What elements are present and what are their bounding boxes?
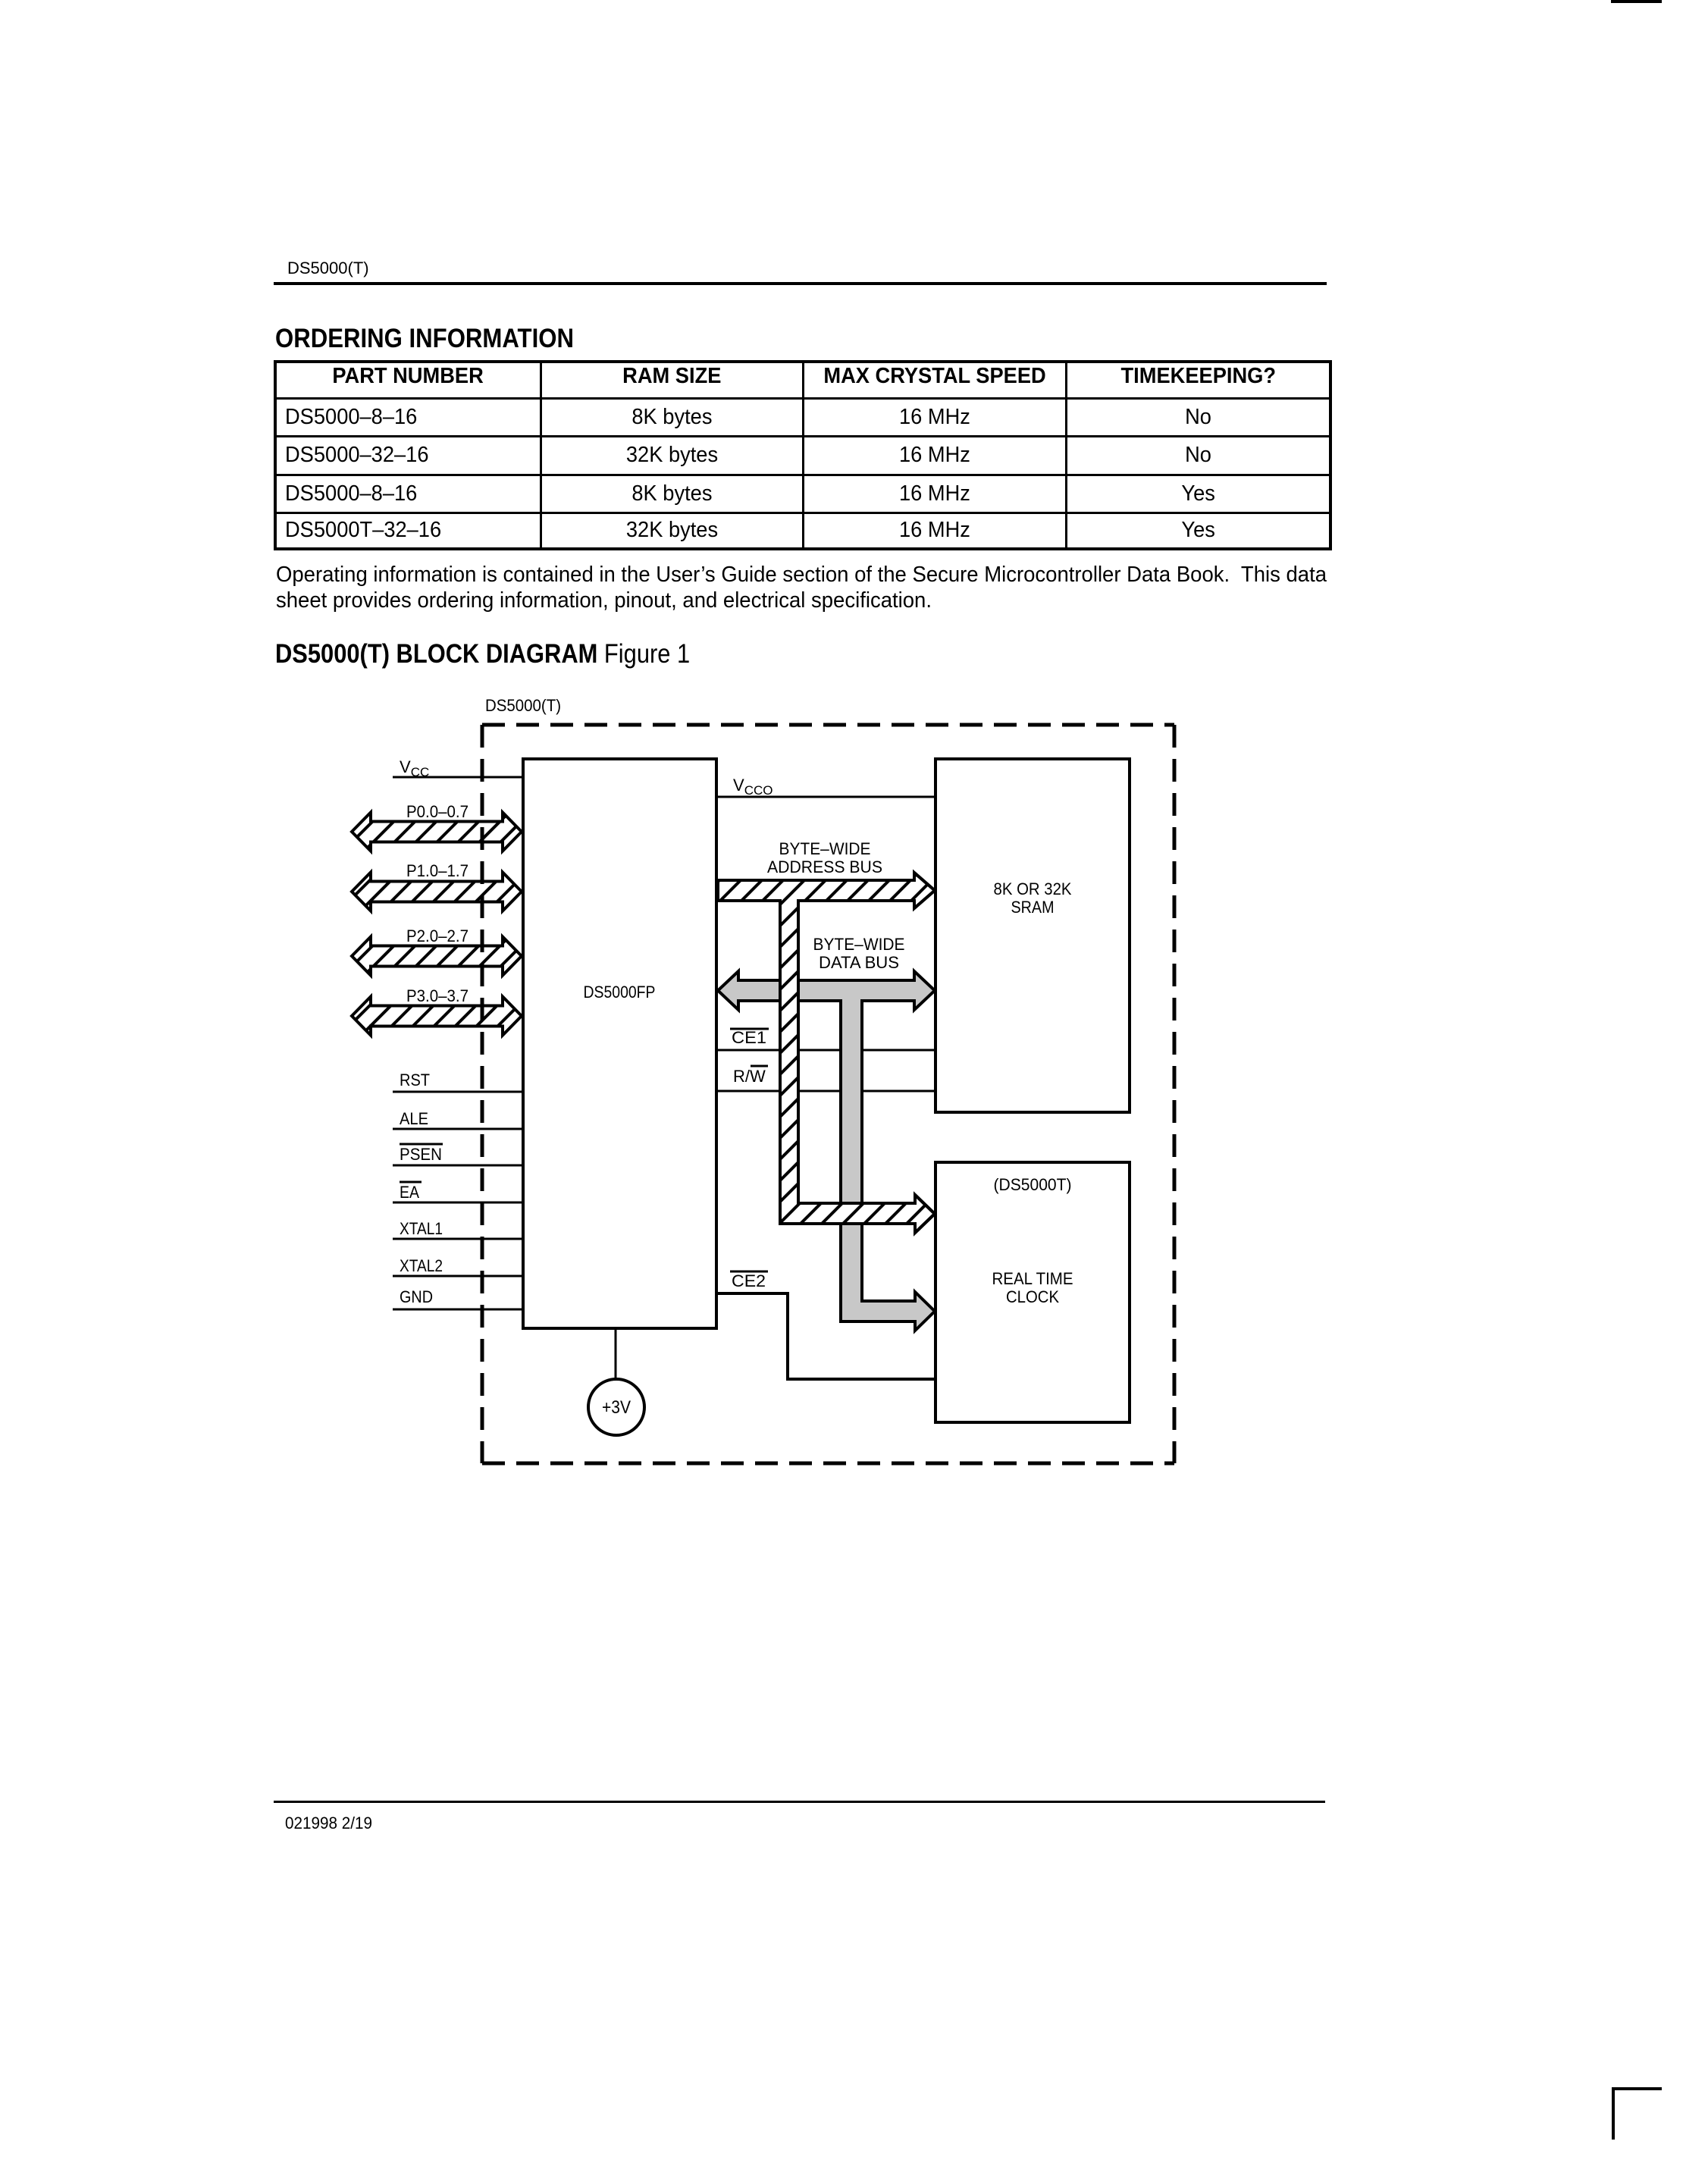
svg-text:EA: EA [400, 1183, 419, 1202]
svg-text:XTAL1: XTAL1 [400, 1219, 443, 1238]
svg-text:BYTE–WIDE: BYTE–WIDE [813, 935, 905, 954]
svg-text:DATA BUS: DATA BUS [819, 953, 899, 972]
svg-text:BYTE–WIDE: BYTE–WIDE [779, 839, 871, 858]
svg-text:R/W: R/W [733, 1067, 766, 1086]
svg-text:+3V: +3V [602, 1397, 631, 1418]
svg-text:PSEN: PSEN [400, 1145, 442, 1164]
svg-text:DS5000(T): DS5000(T) [485, 696, 561, 715]
svg-text:REAL TIME: REAL TIME [992, 1269, 1073, 1288]
svg-text:CLOCK: CLOCK [1006, 1287, 1059, 1306]
svg-text:RST: RST [400, 1071, 430, 1089]
svg-text:8K OR 32K: 8K OR 32K [994, 879, 1072, 898]
svg-text:CE1: CE1 [732, 1028, 766, 1047]
svg-text:ALE: ALE [400, 1109, 428, 1128]
svg-text:(DS5000T): (DS5000T) [994, 1175, 1072, 1194]
svg-text:P0.0–0.7: P0.0–0.7 [406, 802, 469, 821]
svg-text:SRAM: SRAM [1011, 898, 1055, 917]
svg-text:P2.0–2.7: P2.0–2.7 [406, 926, 469, 945]
svg-text:GND: GND [400, 1287, 433, 1306]
svg-text:P1.0–1.7: P1.0–1.7 [406, 861, 469, 880]
svg-text:VCCO: VCCO [733, 776, 773, 798]
svg-text:ADDRESS BUS: ADDRESS BUS [767, 857, 882, 876]
svg-text:P3.0–3.7: P3.0–3.7 [406, 986, 469, 1005]
svg-text:VCC: VCC [400, 757, 429, 779]
svg-text:DS5000FP: DS5000FP [584, 983, 656, 1002]
svg-text:CE2: CE2 [732, 1271, 766, 1290]
svg-text:XTAL2: XTAL2 [400, 1256, 443, 1275]
